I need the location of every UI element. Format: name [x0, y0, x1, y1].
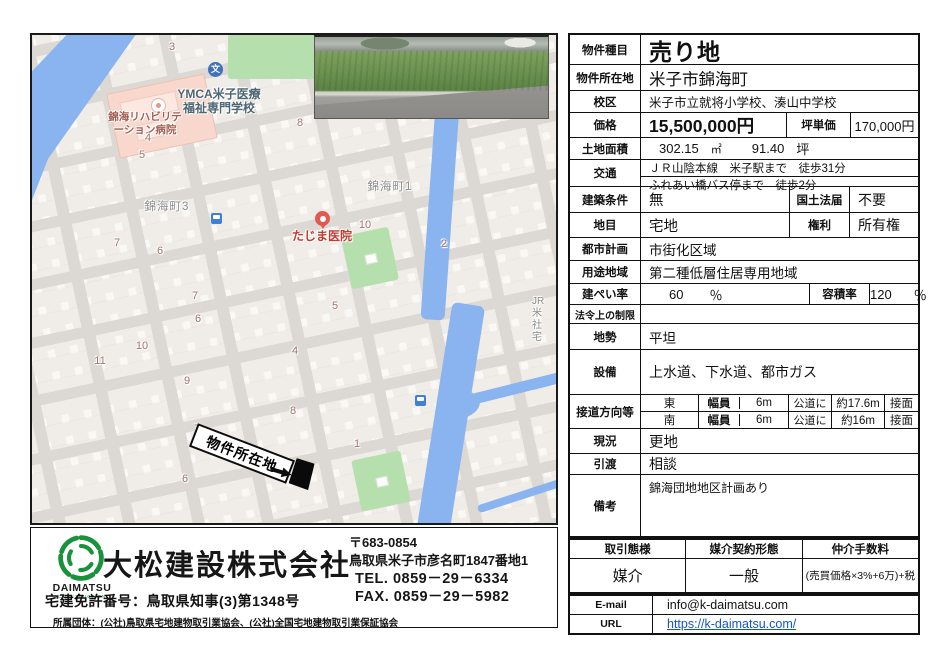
map-label-num: 7 — [114, 237, 120, 249]
coverage-ratio-value: 60 — [669, 287, 683, 302]
map-label-town: 錦海町1 — [368, 178, 413, 194]
rights-value: 所有権 — [849, 213, 918, 237]
remarks-value: 錦海団地地区計画あり — [641, 475, 918, 536]
table-row: 校区 米子市立就将小学校、湊山中学校 — [570, 90, 918, 112]
row-label: 校区 — [570, 91, 641, 112]
table-row: 物件種目 売り地 — [570, 35, 918, 64]
coverage-ratio-unit: ％ — [709, 285, 722, 304]
sqm-unit: ㎡ — [711, 141, 722, 157]
row-label: 用途地域 — [570, 261, 641, 283]
address-line: 鳥取県米子市彦名町1847番地1 — [349, 552, 528, 570]
road-width-label: 幅員 — [698, 412, 739, 428]
utilities-value: 上水道、下水道、都市ガス — [641, 350, 918, 394]
table-row: 土地面積 302.15 ㎡ 91.40 坪 — [570, 137, 918, 159]
row-label: 交通 — [570, 160, 641, 186]
map-label-num: 4 — [292, 345, 298, 357]
url-label: URL — [570, 615, 653, 633]
school-district-value: 米子市立就将小学校、湊山中学校 — [641, 91, 918, 112]
table-row: 設備 上水道、下水道、都市ガス — [570, 349, 918, 394]
table-row: 引渡 相談 — [570, 453, 918, 474]
road-frontage-value: 約16m — [831, 412, 884, 428]
map-label-num: 3 — [169, 41, 175, 53]
road-access-row-1: 東 幅員 6m 公道に 約17.6m 接面 — [641, 395, 918, 411]
property-photo — [314, 35, 549, 119]
map-label-num: 9 — [184, 375, 190, 387]
road-width-value: 6m — [739, 397, 788, 409]
table-row: 建築条件 無 国土法届 不要 — [570, 186, 918, 212]
row-label: 接道方向等 — [570, 395, 641, 428]
road-width-value: 6m — [739, 414, 788, 426]
daimatsu-logo-icon — [57, 534, 105, 582]
road-direction: 東 — [641, 395, 698, 411]
unit-price-label: 坪単価 — [786, 113, 850, 137]
company-name: 大松建設株式会社 — [103, 542, 351, 584]
tel-number: TEL. 0859－29－6334 — [349, 570, 528, 588]
land-act-value: 不要 — [849, 187, 918, 212]
license-number: 宅建免許番号：鳥取県知事(3)第1348号 — [45, 591, 300, 611]
contract-form-value: 一般 — [685, 559, 801, 592]
property-type-value: 売り地 — [641, 35, 918, 64]
table-row: 接道方向等 東 幅員 6m 公道に 約17.6m 接面 南 幅員 6m 公道に … — [570, 394, 918, 428]
row-label: 引渡 — [570, 454, 641, 474]
handover-value: 相談 — [641, 454, 918, 474]
row-label: 土地面積 — [570, 138, 641, 159]
table-row: 備考 錦海団地地区計画あり — [570, 474, 918, 536]
floor-ratio-unit: ％ — [914, 285, 927, 304]
company-url-link[interactable]: https://k-daimatsu.com/ — [667, 617, 796, 631]
map-label-num: 10 — [136, 340, 148, 352]
company-info-box: DAIMATSU CONSTRUCTION 大松建設株式会社 〒683-0854… — [30, 527, 558, 628]
email-value: info@k-daimatsu.com — [653, 596, 918, 614]
road-direction: 南 — [641, 412, 698, 428]
table-row: 建ぺい率 60 ％ 容積率 120 ％ — [570, 283, 918, 304]
contract-form-header: 媒介契約形態 — [685, 540, 801, 558]
topography-value: 平坦 — [641, 324, 918, 349]
land-act-label: 国土法届 — [789, 187, 849, 212]
table-row: 交通 ＪＲ山陰本線 米子駅まで 徒歩31分 ふれあい橋バス停まで 徒歩2分 — [570, 159, 918, 186]
map-label-num: 6 — [182, 473, 188, 485]
land-area-sqm: 302.15 — [659, 141, 699, 156]
legal-restrictions-value — [641, 305, 918, 323]
table-row: 価格 15,500,000円 坪単価 170,000円 — [570, 112, 918, 137]
property-table: 物件種目 売り地 物件所在地 米子市錦海町 校区 米子市立就将小学校、湊山中学校… — [568, 33, 920, 538]
row-label: 法令上の制限 — [570, 305, 641, 323]
road-width-label: 幅員 — [698, 395, 739, 411]
floor-ratio-value: 120 — [870, 287, 892, 302]
current-state-value: 更地 — [641, 429, 918, 453]
table-row: 用途地域 第二種低層住居専用地域 — [570, 260, 918, 283]
transaction-table: 取引態様 媒介契約形態 仲介手数料 媒介 一般 (売買価格×3%+6万)+税 — [568, 538, 920, 594]
map-label-num: 5 — [139, 149, 145, 161]
association-memberships: 所属団体：(公社)鳥取県宅地建物取引業協会、(公社)全国宅地建物取引業保証協会 — [53, 615, 398, 629]
table-row: 物件所在地 米子市錦海町 — [570, 64, 918, 90]
city-planning-value: 市街化区域 — [641, 238, 918, 260]
table-row: 地目 宅地 権利 所有権 — [570, 212, 918, 237]
table-row: 地勢 平坦 — [570, 323, 918, 349]
row-label: 価格 — [570, 113, 641, 137]
transaction-type-header: 取引態様 — [570, 540, 685, 558]
row-label: 地勢 — [570, 324, 641, 349]
floor-ratio-label: 容積率 — [809, 284, 869, 304]
tsubo-unit: 坪 — [796, 139, 809, 158]
map-label-num: 10 — [359, 219, 371, 231]
map-label-num: 6 — [157, 245, 163, 257]
row-label: 建築条件 — [570, 187, 641, 212]
row-label: 現況 — [570, 429, 641, 453]
row-label: 備考 — [570, 475, 641, 536]
map-label-town: 錦海町3 — [145, 198, 190, 214]
map-label-num: 6 — [195, 313, 201, 325]
transit-line-1: ＪＲ山陰本線 米子駅まで 徒歩31分 — [641, 160, 918, 176]
building-condition-value: 無 — [641, 187, 789, 212]
road-access-row-2: 南 幅員 6m 公道に 約16m 接面 — [641, 411, 918, 428]
road-type: 公道に — [788, 395, 831, 411]
map-label-rail: JR米 社宅 — [532, 296, 548, 344]
brokerage-fee-header: 仲介手数料 — [802, 540, 918, 558]
map-label-num: 7 — [192, 290, 198, 302]
email-label: E-mail — [570, 596, 653, 614]
price-value: 15,500,000円 — [641, 113, 786, 137]
row-label: 設備 — [570, 350, 641, 394]
rights-label: 権利 — [789, 213, 849, 237]
location-map: 文 YMCA米子医療 福祉専門学校 錦海リハビリテ ーション病院 たじま医院 3… — [30, 33, 558, 525]
brokerage-fee-value: (売買価格×3%+6万)+税 — [802, 559, 918, 592]
land-area-tsubo: 91.40 — [752, 141, 785, 156]
table-row: 法令上の制限 — [570, 304, 918, 323]
row-label: 物件所在地 — [570, 65, 641, 90]
road-frontage-label: 接面 — [884, 395, 918, 411]
row-label: 地目 — [570, 213, 641, 237]
map-label-num: 5 — [332, 300, 338, 312]
map-label-num: 1 — [354, 438, 360, 450]
postal-code: 〒683-0854 — [349, 534, 528, 552]
map-label-num: 2 — [441, 238, 447, 250]
land-category-value: 宅地 — [641, 213, 789, 237]
table-row: 現況 更地 — [570, 428, 918, 453]
transaction-type-value: 媒介 — [570, 559, 685, 592]
fax-number: FAX. 0859－29－5982 — [349, 588, 528, 606]
contact-table: E-mail info@k-daimatsu.com URL https://k… — [568, 594, 920, 635]
company-address-block: 〒683-0854 鳥取県米子市彦名町1847番地1 TEL. 0859－29－… — [349, 534, 528, 606]
road-frontage-value: 約17.6m — [831, 395, 884, 411]
map-label-num: 8 — [297, 117, 303, 129]
property-address-value: 米子市錦海町 — [641, 65, 918, 90]
unit-price-value: 170,000円 — [850, 113, 918, 137]
map-label-num: 8 — [290, 405, 296, 417]
row-label: 都市計画 — [570, 238, 641, 260]
map-label-num: 4 — [145, 132, 151, 144]
map-label-num: 11 — [94, 355, 105, 367]
row-label: 建ぺい率 — [570, 284, 641, 304]
road-type: 公道に — [788, 412, 831, 428]
zoning-value: 第二種低層住居専用地域 — [641, 261, 918, 283]
row-label: 物件種目 — [570, 35, 641, 64]
table-row: 都市計画 市街化区域 — [570, 237, 918, 260]
road-frontage-label: 接面 — [884, 412, 918, 428]
